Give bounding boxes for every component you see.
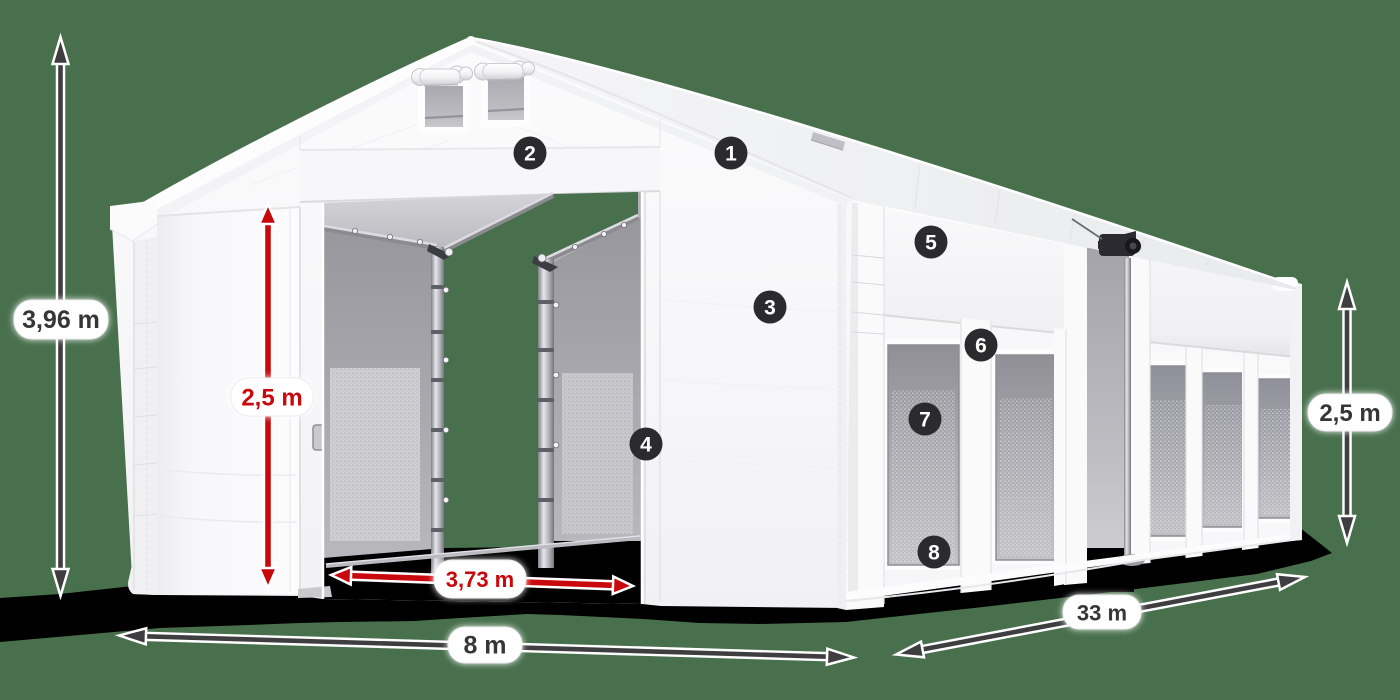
svg-text:33 m: 33 m xyxy=(1077,600,1127,625)
svg-text:3,96 m: 3,96 m xyxy=(22,306,100,334)
svg-text:6: 6 xyxy=(975,334,987,357)
svg-text:3: 3 xyxy=(764,296,776,319)
svg-text:8 m: 8 m xyxy=(463,632,506,660)
svg-text:8: 8 xyxy=(928,541,940,564)
svg-text:2,5 m: 2,5 m xyxy=(241,384,302,411)
svg-text:4: 4 xyxy=(640,433,652,456)
svg-text:5: 5 xyxy=(925,231,937,254)
svg-text:7: 7 xyxy=(919,408,931,431)
svg-text:1: 1 xyxy=(725,142,737,165)
svg-text:2: 2 xyxy=(524,142,536,165)
svg-text:3,73 m: 3,73 m xyxy=(446,567,515,592)
svg-text:2,5 m: 2,5 m xyxy=(1319,400,1380,427)
